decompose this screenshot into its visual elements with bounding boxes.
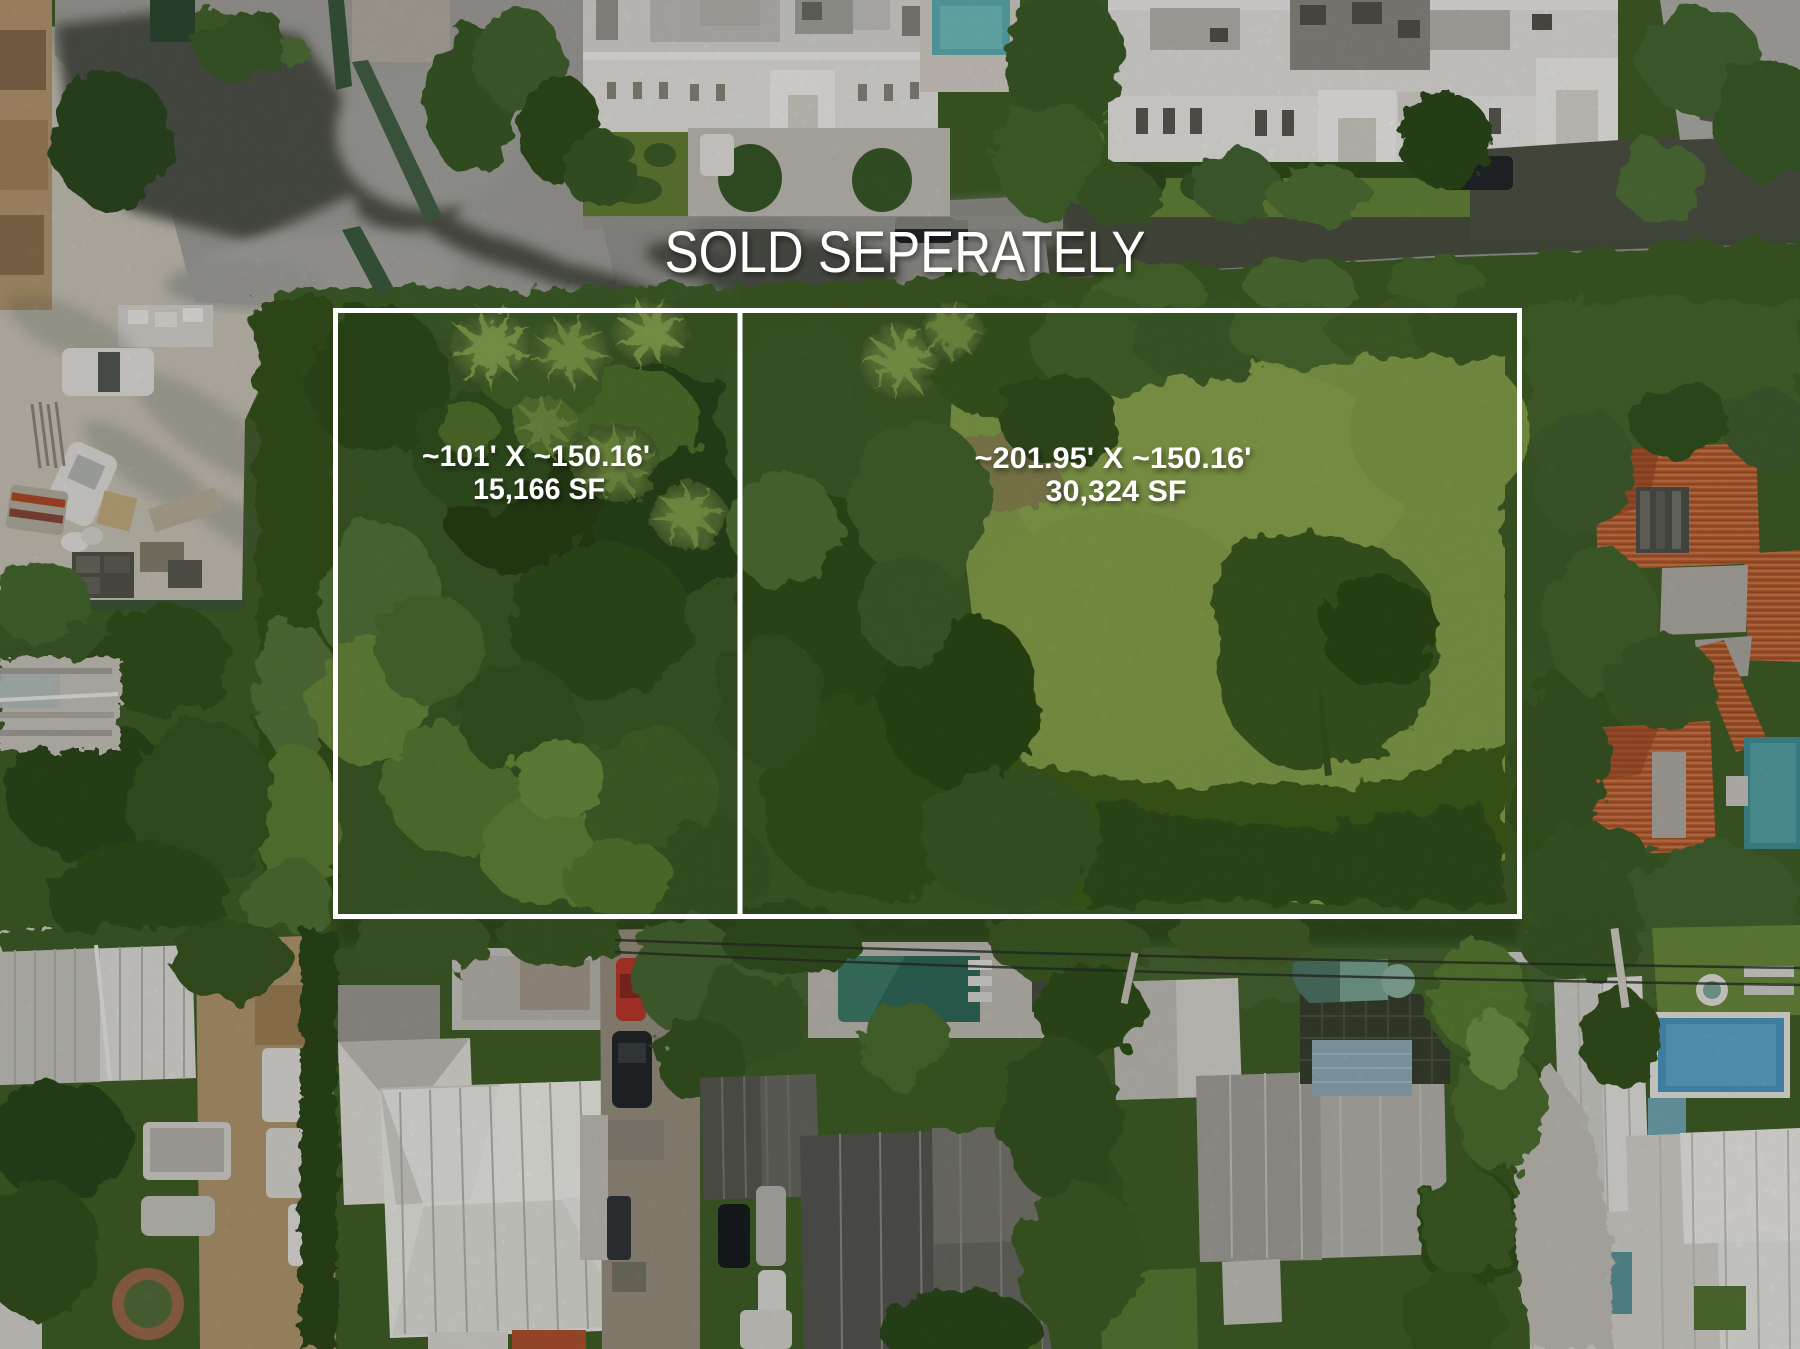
svg-text:~101' X ~150.16': ~101' X ~150.16' xyxy=(422,440,650,473)
svg-text:~201.95' X ~150.16': ~201.95' X ~150.16' xyxy=(975,442,1252,475)
svg-text:SOLD SEPERATELY: SOLD SEPERATELY xyxy=(665,220,1146,285)
svg-text:15,166 SF: 15,166 SF xyxy=(473,473,605,506)
svg-text:30,324 SF: 30,324 SF xyxy=(1046,475,1187,508)
